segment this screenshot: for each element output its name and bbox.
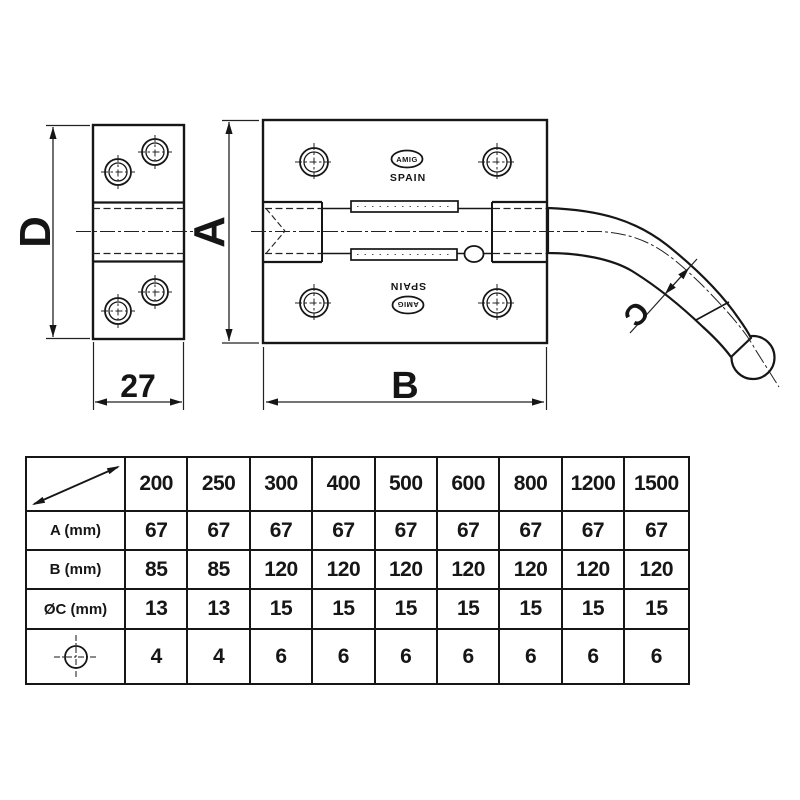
table-cell: 67 — [126, 512, 188, 551]
table-cell: 15 — [438, 590, 500, 630]
table-row-label: B (mm) — [27, 551, 126, 590]
size-column-header: 250 — [188, 458, 250, 512]
rod-body — [548, 208, 751, 357]
dim-27-label: 27 — [120, 368, 156, 404]
table-cell: 4 — [126, 630, 188, 683]
brand-logo-text: AMIG — [397, 300, 419, 309]
dimension-27: 27 — [94, 342, 184, 410]
table-cell: 15 — [251, 590, 313, 630]
table-cell: 120 — [313, 551, 375, 590]
size-column-header: 1200 — [563, 458, 625, 512]
corner-diagonal-arrow-icon — [30, 460, 122, 508]
origin-label: SPAIN — [390, 280, 426, 292]
table-row-label: ØC (mm) — [27, 590, 126, 630]
hole-position-icon — [51, 632, 101, 682]
table-cell: 67 — [500, 512, 562, 551]
table-cell: 13 — [126, 590, 188, 630]
dim-a-label: A — [185, 216, 234, 248]
size-column-header: 500 — [376, 458, 438, 512]
table-cell: 85 — [188, 551, 250, 590]
bolt-technical-drawing: D 27 — [0, 0, 800, 452]
dim-d-label: D — [11, 216, 60, 248]
table-cell: 67 — [625, 512, 687, 551]
bolt-rod — [548, 208, 775, 379]
table-cell: 67 — [313, 512, 375, 551]
table-cell: 120 — [500, 551, 562, 590]
size-column-header: 800 — [500, 458, 562, 512]
dim-b-label: B — [391, 365, 418, 407]
size-table: 200 250 300 400 500 600 800 1200 1500 A … — [25, 456, 690, 685]
brand-logo-text: AMIG — [396, 155, 418, 164]
table-cell: 120 — [438, 551, 500, 590]
table-cell: 85 — [126, 551, 188, 590]
table-cell: 15 — [563, 590, 625, 630]
size-column-header: 200 — [126, 458, 188, 512]
table-cell: 6 — [376, 630, 438, 683]
table-cell: 13 — [188, 590, 250, 630]
table-cell: 120 — [376, 551, 438, 590]
table-cell: 67 — [188, 512, 250, 551]
origin-label: SPAIN — [390, 172, 426, 184]
table-cell: 6 — [625, 630, 687, 683]
table-row-label: A (mm) — [27, 512, 126, 551]
table-cell: 120 — [625, 551, 687, 590]
table-cell: 15 — [500, 590, 562, 630]
size-column-header: 400 — [313, 458, 375, 512]
table-cell: 120 — [251, 551, 313, 590]
table-cell: 15 — [376, 590, 438, 630]
table-cell: 4 — [188, 630, 250, 683]
table-cell: 6 — [313, 630, 375, 683]
table-corner-cell — [27, 458, 126, 512]
table-cell: 67 — [438, 512, 500, 551]
table-cell: 67 — [251, 512, 313, 551]
size-column-header: 600 — [438, 458, 500, 512]
table-cell: 15 — [625, 590, 687, 630]
size-column-header: 300 — [251, 458, 313, 512]
size-column-header: 1500 — [625, 458, 687, 512]
side-view-plate — [76, 125, 200, 339]
table-cell: 120 — [563, 551, 625, 590]
table-cell: 6 — [500, 630, 562, 683]
technical-drawing-page: D 27 — [0, 0, 800, 800]
dimension-b: B — [264, 347, 547, 410]
table-cell: 6 — [251, 630, 313, 683]
table-cell: 6 — [563, 630, 625, 683]
handle-knob-section — [465, 246, 484, 262]
table-cell: 6 — [438, 630, 500, 683]
table-cell: 67 — [563, 512, 625, 551]
table-row-label-holes — [27, 630, 126, 683]
table-cell: 67 — [376, 512, 438, 551]
dim-c-label: C — [616, 294, 655, 332]
dimension-a: A — [185, 121, 259, 344]
table-cell: 15 — [313, 590, 375, 630]
